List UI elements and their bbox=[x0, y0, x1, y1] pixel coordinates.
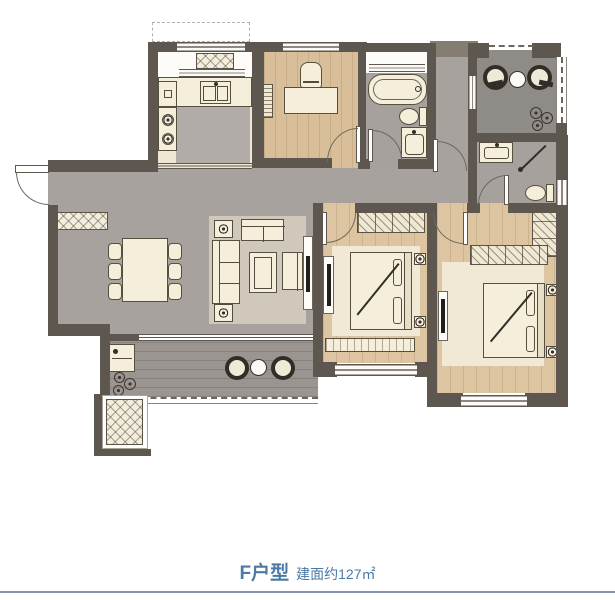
wall bbox=[100, 330, 110, 400]
wall bbox=[468, 109, 477, 210]
wall bbox=[48, 324, 110, 336]
dining-chair bbox=[108, 243, 122, 260]
window-seat bbox=[325, 338, 415, 352]
pillow bbox=[393, 297, 402, 324]
burner-icon bbox=[162, 133, 174, 145]
lounge-chair-icon bbox=[225, 356, 249, 380]
floor-plan: F户型建面约127㎡ bbox=[0, 0, 615, 600]
wall bbox=[355, 203, 437, 213]
nightstand-icon bbox=[414, 253, 426, 265]
wash-basin-icon bbox=[401, 127, 427, 158]
sofa-cushion-line bbox=[220, 262, 240, 263]
sink-tap bbox=[214, 82, 218, 86]
cabinet-knob bbox=[113, 349, 118, 354]
wall bbox=[532, 43, 561, 58]
dining-chair bbox=[108, 263, 122, 280]
sofa-cushion-line bbox=[220, 283, 240, 284]
bookshelf-icon bbox=[263, 84, 273, 118]
equipment-platform bbox=[152, 22, 250, 42]
toilet-icon bbox=[524, 183, 555, 203]
coffee-table bbox=[249, 252, 277, 293]
window bbox=[335, 364, 417, 376]
balcony-cabinet bbox=[108, 344, 135, 372]
tv-icon bbox=[327, 264, 331, 306]
tv-icon bbox=[441, 299, 445, 333]
chair-seat bbox=[539, 80, 554, 88]
wardrobe-icon bbox=[470, 245, 548, 265]
double-bed bbox=[483, 283, 545, 358]
plan-area-label: 建面约127㎡ bbox=[296, 566, 375, 582]
cabinet-handle bbox=[164, 90, 172, 98]
round-table-icon bbox=[250, 359, 267, 376]
tv-icon bbox=[306, 256, 310, 292]
wardrobe-icon bbox=[357, 212, 425, 233]
bathtub-drain bbox=[415, 86, 421, 92]
entry-threshold bbox=[48, 172, 58, 205]
dining-chair bbox=[108, 283, 122, 300]
round-table-icon bbox=[509, 71, 526, 88]
lounge-chair-icon bbox=[527, 65, 552, 90]
wall bbox=[525, 393, 568, 407]
plant-icon bbox=[541, 112, 553, 124]
kitchen-cabinet-icon bbox=[158, 81, 177, 107]
dining-chair bbox=[168, 243, 182, 260]
wall bbox=[252, 158, 332, 168]
wall bbox=[243, 42, 285, 52]
window bbox=[283, 42, 339, 52]
plan-caption: F户型建面约127㎡ bbox=[0, 558, 615, 585]
bed-headboard bbox=[404, 253, 411, 329]
coffee-table-inner bbox=[254, 257, 272, 289]
sink-basin-left bbox=[203, 86, 216, 101]
sofa-3-seat bbox=[212, 240, 240, 304]
shower-arrow-head bbox=[518, 167, 523, 172]
wall bbox=[313, 362, 337, 377]
glass-door bbox=[468, 76, 477, 109]
desk bbox=[284, 87, 338, 114]
wall bbox=[48, 205, 58, 336]
dining-chair bbox=[168, 263, 182, 280]
wash-basin-icon bbox=[479, 142, 513, 163]
appliance-platform-icon bbox=[196, 53, 234, 69]
double-bed bbox=[350, 252, 412, 330]
dining-chair bbox=[168, 283, 182, 300]
wall bbox=[358, 43, 436, 52]
sofa-back-line bbox=[219, 241, 220, 305]
bottom-divider bbox=[0, 591, 615, 593]
wall bbox=[476, 43, 489, 58]
plant-icon bbox=[124, 378, 136, 390]
basin-tap bbox=[412, 130, 416, 134]
plan-title: F户型 bbox=[240, 563, 290, 584]
kitchen-sink-icon bbox=[200, 81, 231, 104]
nightstand-icon bbox=[414, 316, 426, 328]
railing-dash bbox=[561, 57, 563, 123]
bathroom1-window bbox=[369, 64, 425, 72]
flue-icon bbox=[106, 399, 143, 445]
window bbox=[461, 395, 527, 407]
burner-icon bbox=[162, 114, 174, 126]
armchair bbox=[282, 252, 303, 290]
kitchen-inner-window bbox=[179, 69, 245, 77]
stove-icon bbox=[158, 107, 177, 151]
wall bbox=[110, 334, 139, 341]
toilet-tank bbox=[419, 107, 427, 126]
window bbox=[177, 42, 245, 52]
toilet-bowl bbox=[399, 108, 419, 125]
shoe-cabinet-icon bbox=[55, 212, 108, 230]
toilet-tank bbox=[546, 184, 554, 202]
wall bbox=[94, 449, 151, 456]
cabinet-line bbox=[112, 358, 132, 359]
window bbox=[556, 180, 568, 205]
chair-back-line bbox=[297, 253, 298, 291]
sink-basin-right bbox=[217, 86, 228, 101]
pillow bbox=[526, 326, 535, 352]
wall bbox=[48, 160, 158, 172]
wall bbox=[94, 394, 102, 456]
desk-chair bbox=[300, 62, 322, 88]
chair-back-line bbox=[303, 81, 319, 83]
entry-door-arc bbox=[16, 172, 49, 205]
toilet-bowl bbox=[525, 185, 546, 201]
bathtub-icon bbox=[368, 74, 427, 105]
toilet-icon bbox=[398, 106, 428, 127]
chair-seat bbox=[489, 80, 504, 88]
plant-icon bbox=[532, 120, 543, 131]
bed-headboard bbox=[537, 284, 544, 357]
wall bbox=[427, 393, 463, 407]
lounge-chair-icon bbox=[271, 356, 295, 380]
dining-table bbox=[122, 238, 168, 302]
basin-inner bbox=[405, 134, 424, 155]
wall bbox=[556, 135, 568, 407]
side-table-icon bbox=[214, 304, 233, 322]
loveseat bbox=[241, 219, 284, 241]
kitchen-sliding-door bbox=[158, 163, 252, 169]
balcony-open-edge bbox=[489, 45, 534, 47]
wall bbox=[415, 362, 437, 377]
basin-tap bbox=[495, 143, 499, 147]
lounge-chair-icon bbox=[483, 65, 508, 90]
basin-inner bbox=[484, 147, 509, 159]
balcony-railing bbox=[556, 57, 567, 123]
side-table-icon bbox=[214, 220, 233, 238]
balcony-sliding-door bbox=[137, 334, 318, 341]
wall bbox=[148, 42, 158, 172]
kitchen-floor-tile bbox=[176, 101, 250, 163]
sofa-cushion-line bbox=[263, 227, 264, 242]
wall bbox=[468, 133, 567, 142]
wall bbox=[468, 43, 477, 76]
wall bbox=[252, 42, 264, 168]
